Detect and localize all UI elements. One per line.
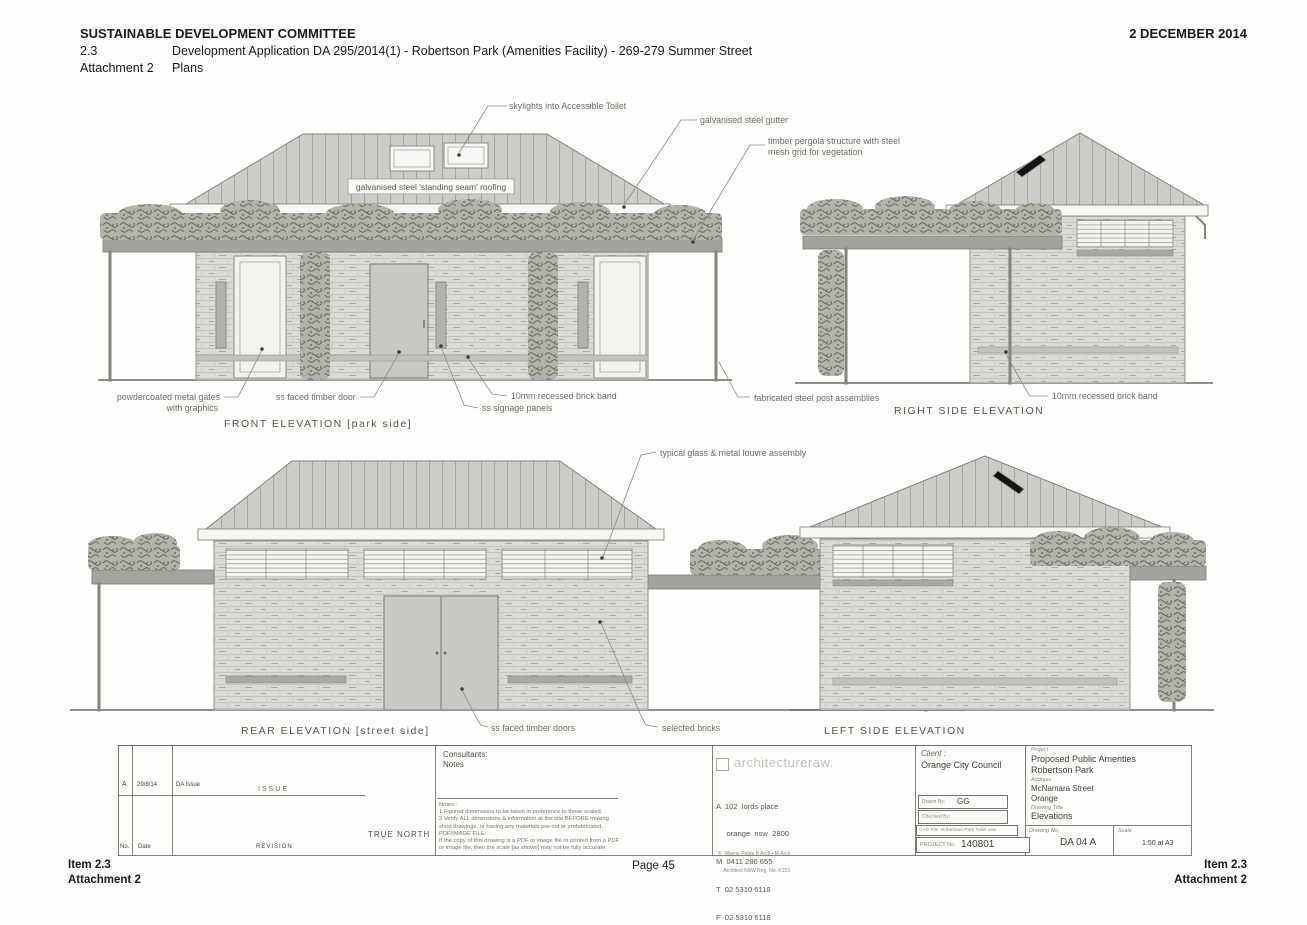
project-name-line2: Robertson Park — [1031, 765, 1094, 775]
recessed-brick-band — [508, 676, 632, 683]
note-line: 2 Verify ALL dimensions & information at… — [439, 816, 619, 823]
hip-roof — [206, 461, 656, 529]
annotation-gutter: galvanised steel gutter — [700, 115, 788, 125]
project-no-box: PROJECT No. 140801 — [916, 837, 1030, 853]
vegetation-cluster — [875, 196, 935, 218]
grid-line — [118, 795, 365, 796]
project-label: Project — [1031, 747, 1048, 753]
vegetation-cluster — [949, 201, 1001, 219]
architect-address-line: orange nsw 2800 — [716, 829, 833, 838]
column-date: Date — [138, 844, 151, 850]
note-line: or image file, then the scale [as shown]… — [439, 845, 619, 852]
annotation-signage: ss signage panels — [482, 403, 553, 413]
pergola-beam — [803, 236, 1062, 249]
front-elevation-title: FRONT ELEVATION [park side] — [224, 418, 412, 430]
annotation-gates-line2: with graphics — [166, 403, 219, 413]
leader-dot — [691, 240, 695, 244]
right-side-elevation-drawing: fabricated steel post assemblies 10mm re… — [719, 133, 1213, 417]
attachment-title: Plans — [172, 61, 203, 75]
architectureraw-logo-icon — [716, 758, 729, 771]
annotation-timber-doors: ss faced timber doors — [491, 723, 576, 733]
vegetation-cluster — [698, 540, 746, 558]
grid-line — [1025, 825, 1192, 826]
vegetation-cluster — [1015, 203, 1055, 219]
checked-by-box: Checked By: — [918, 810, 1008, 824]
vegetation-cluster — [807, 199, 863, 219]
header-date: 2 DECEMBER 2014 — [1000, 26, 1247, 41]
vegetation-cluster — [220, 200, 280, 222]
column-no: No. — [120, 844, 129, 850]
louvre-assembly — [226, 549, 348, 579]
drawing-title-value: Elevations — [1031, 811, 1073, 821]
pergola-beam — [92, 570, 214, 584]
grid-line — [437, 798, 618, 799]
door-handle — [436, 652, 439, 655]
issue-description: DA Issue — [176, 782, 200, 788]
annotation-posts: fabricated steel post assemblies — [754, 393, 880, 403]
title-block: A 29/8/14 DA Issue ISSUE No. Date REVISI… — [118, 745, 1192, 856]
architect-logo-text: architectureraw. — [734, 755, 834, 770]
architect-phone: T 02 5310 6118 — [716, 885, 833, 894]
grid-line — [118, 745, 119, 856]
signage-panel — [436, 282, 446, 348]
attachment-label: Attachment 2 — [80, 61, 172, 75]
front-elevation-drawing: galvanised steel 'standing seam' roofing — [98, 101, 900, 430]
true-north-label: TRUE NORTH — [368, 830, 430, 839]
climbing-vine — [528, 252, 558, 380]
architect-address-line: A 102 lords place — [716, 802, 833, 811]
issue-date: 29/8/14 — [137, 782, 157, 788]
leader-dot — [460, 687, 464, 691]
note-line: 1 Figured dimensions to be taken in pref… — [439, 809, 619, 816]
item-title: Development Application DA 295/2014(1) -… — [172, 44, 752, 58]
annotation-pergola-line2: mesh grid for vegetation — [768, 147, 862, 157]
soldier-brick-course — [833, 580, 953, 586]
issue-label: ISSUE — [258, 786, 289, 793]
title-block-border — [118, 745, 1192, 746]
soldier-brick-course — [1077, 250, 1173, 256]
note-line: PDF/IMAGE FILE: — [439, 831, 619, 838]
footer-item: Item 2.3 — [1060, 858, 1247, 873]
footer-right: Item 2.3 Attachment 2 — [1060, 858, 1247, 888]
annotation-brick-band-right: 10mm recessed brick band — [1052, 391, 1158, 401]
cad-file-box: CAD File: Robertson Park Toilet.vwx — [916, 825, 1018, 836]
vegetation-cluster — [133, 533, 177, 553]
grid-line — [712, 745, 713, 856]
architect-fax: F 02 5310 6118 — [716, 913, 833, 922]
left-side-elevation-drawing: LEFT SIDE ELEVATION — [790, 456, 1214, 737]
annotation-brick-band: 10mm recessed brick band — [511, 391, 617, 401]
note-line: Notes : — [439, 802, 619, 809]
recessed-brick-band — [978, 347, 1178, 353]
scale-value: 1:50 at A3 — [1142, 840, 1174, 847]
leader-dot — [600, 556, 604, 560]
leader-dot — [397, 350, 401, 354]
grid-line — [1191, 745, 1192, 856]
cad-file-label: CAD File: Robertson Park Toilet.vwx — [919, 828, 996, 833]
drawn-by-label: Drawn By: — [922, 799, 945, 805]
louvre-assembly — [502, 549, 632, 579]
vegetation-cluster — [1034, 531, 1082, 549]
vegetation-cluster — [550, 202, 610, 222]
vegetation-cluster — [654, 205, 706, 223]
annotation-selected-bricks: selected bricks — [662, 723, 721, 733]
scale-label: Scale — [1118, 828, 1132, 834]
project-name-line1: Proposed Public Amenties — [1031, 754, 1136, 764]
item-number: 2.3 — [80, 44, 172, 58]
climbing-vine — [1158, 582, 1186, 702]
document-page: galvanised steel 'standing seam' roofing — [0, 0, 1307, 925]
note-line: If the copy of this drawing is a PDF or … — [439, 838, 619, 845]
leader-dot — [260, 347, 264, 351]
consultants-label: Consultants: — [443, 750, 487, 759]
leader-dot — [1004, 350, 1008, 354]
recessed-brick-band — [833, 678, 1117, 685]
left-elevation-title: LEFT SIDE ELEVATION — [824, 725, 966, 737]
signage-panel — [578, 282, 588, 348]
recessed-brick-band — [196, 355, 648, 361]
vegetation-cluster — [326, 204, 394, 222]
annotation-gates-line1: powdercoated metal gates — [117, 392, 221, 402]
rear-elevation-title: REAR ELEVATION [street side] — [241, 725, 430, 737]
project-no-value: 140801 — [961, 839, 994, 850]
notes-label: Notes — [443, 760, 464, 769]
hip-roof — [810, 456, 1162, 527]
note-line: shop drawings, or having any materials p… — [439, 824, 619, 831]
client-label: Client : — [921, 749, 946, 758]
vegetation-cluster — [438, 199, 502, 221]
checked-by-label: Checked By: — [922, 814, 950, 820]
issue-rev-letter: A — [122, 781, 127, 788]
drawn-by-box: Drawn By: GG — [918, 795, 1008, 809]
pergola-beam — [1130, 566, 1206, 580]
annotation-louvre: typical glass & metal louvre assembly — [660, 448, 807, 458]
signage-panel — [216, 282, 226, 348]
leader-dot — [598, 620, 602, 624]
project-address-line2: Orange — [1031, 794, 1058, 803]
vegetation-cluster — [1084, 527, 1140, 549]
address-label: Address — [1031, 777, 1051, 783]
footer-attachment: Attachment 2 — [68, 873, 141, 888]
drawing-no-label: Drawing No. — [1029, 828, 1059, 834]
annotation-skylights: skylights into Accessible Toilet — [509, 101, 627, 111]
vegetation-cluster — [118, 204, 182, 224]
roofing-label: galvanised steel 'standing seam' roofing — [356, 182, 506, 192]
vegetation-cluster — [1150, 532, 1194, 550]
grid-line — [132, 745, 133, 856]
climbing-vine — [300, 252, 330, 380]
door-handle — [444, 652, 447, 655]
leader-dot — [466, 355, 470, 359]
project-address-line1: McNamara Street — [1031, 784, 1094, 793]
right-elevation-title: RIGHT SIDE ELEVATION — [894, 405, 1044, 417]
drawing-no-value: DA 04 A — [1060, 837, 1096, 848]
climbing-vine — [818, 250, 844, 376]
title-block-border — [118, 855, 1192, 856]
grid-line — [435, 745, 436, 856]
downpipe — [1196, 216, 1205, 239]
footer-attachment: Attachment 2 — [1060, 873, 1247, 888]
pergola-vegetation — [100, 213, 722, 240]
annotation-pergola-line1: timber pergola structure with steel — [768, 136, 900, 146]
grid-line — [172, 745, 173, 856]
vegetation-cluster — [88, 536, 136, 554]
registration-line: © Wayne Petrie B Arch • M Arch — [718, 852, 791, 858]
drawn-by-value: GG — [957, 797, 969, 806]
client-name: Orange City Council — [921, 760, 1002, 770]
pergola-beam — [103, 238, 722, 252]
annotation-timber-door: ss faced timber door — [276, 392, 356, 402]
hip-roof — [956, 133, 1204, 205]
committee-title: SUSTAINABLE DEVELOPMENT COMMITTEE — [80, 26, 356, 41]
leader-dot — [439, 344, 443, 348]
notes-text: Notes : 1 Figured dimensions to be taken… — [439, 802, 619, 852]
eave-gutter — [198, 529, 664, 540]
column-revision: REVISION — [256, 844, 293, 850]
project-no-label: PROJECT No. — [920, 842, 956, 848]
recessed-brick-band — [226, 676, 346, 683]
louvre-assembly — [364, 549, 486, 579]
grid-line — [1113, 825, 1114, 856]
leader-dot — [622, 205, 626, 209]
leader-dot — [457, 153, 461, 157]
